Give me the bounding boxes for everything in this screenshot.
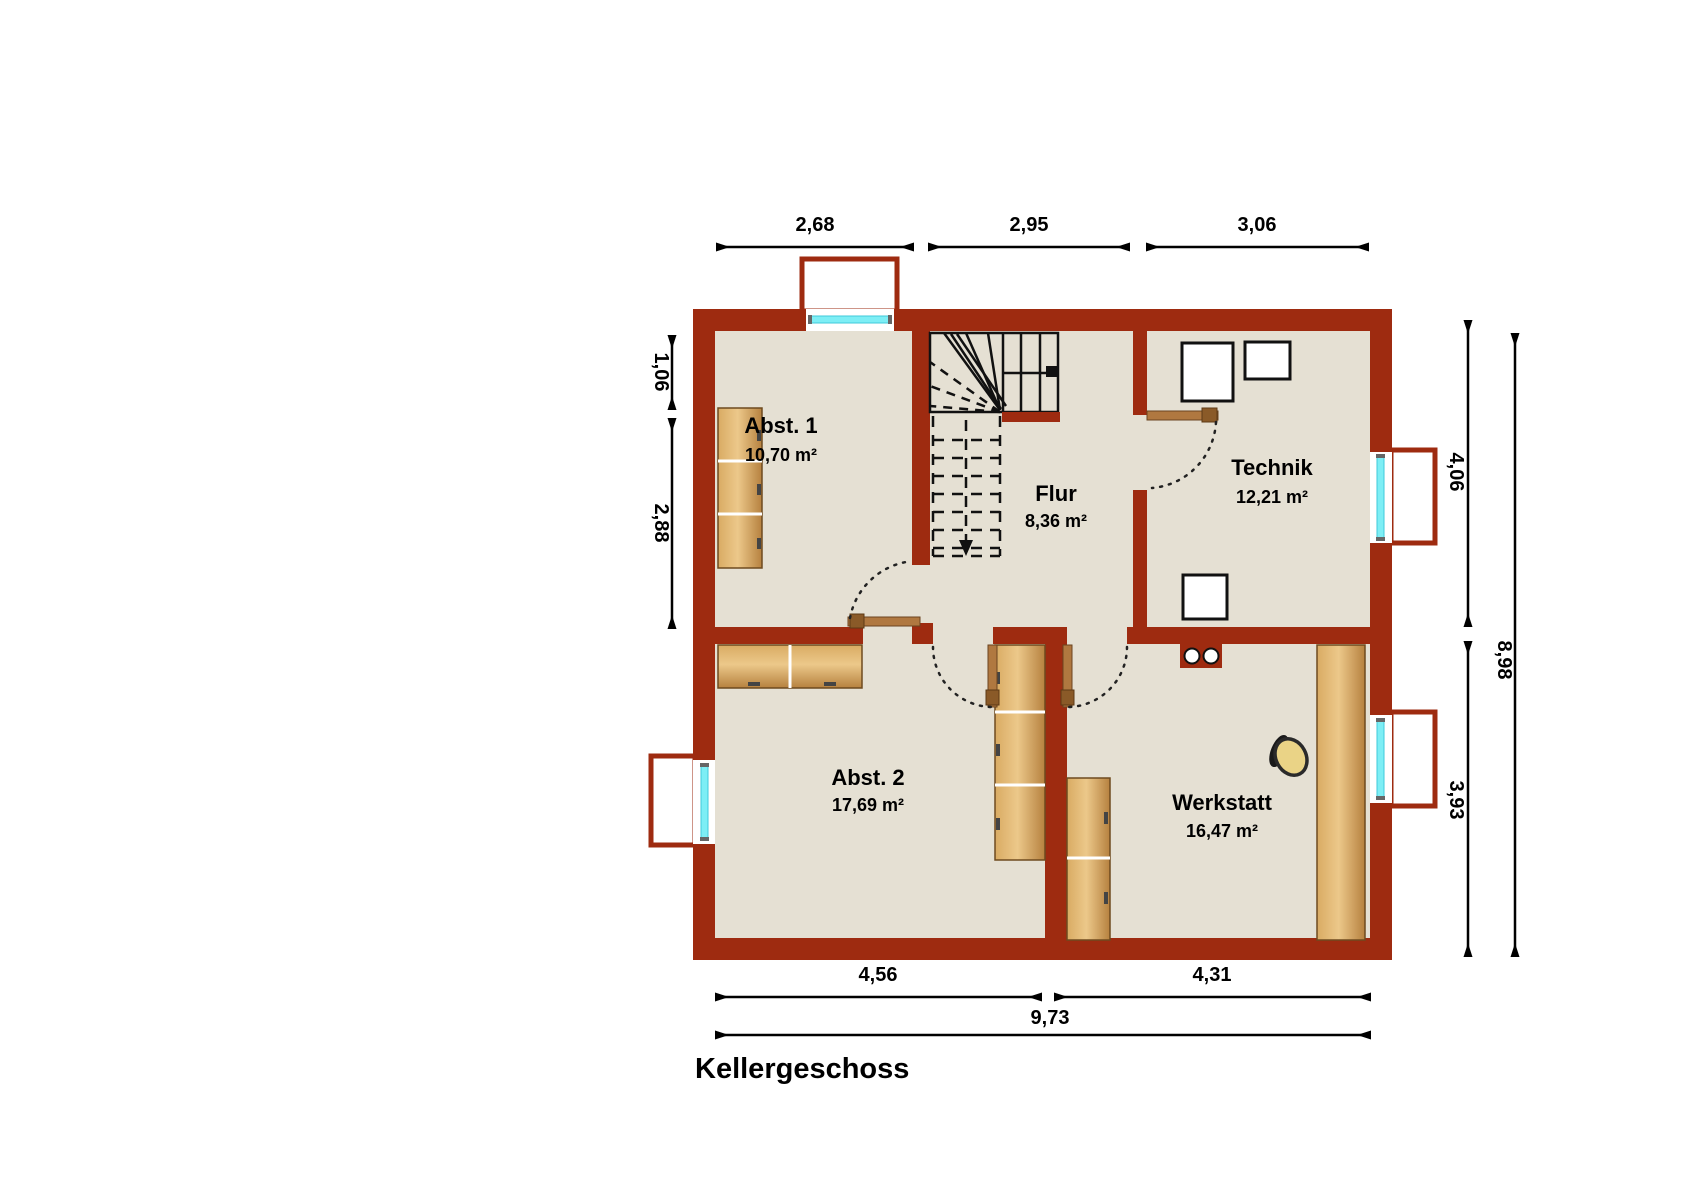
room-werkstatt-area: 16,47 m² xyxy=(1186,821,1258,841)
wall-west xyxy=(693,309,715,960)
dim-bottom-1: 4,56 xyxy=(859,964,898,986)
wall-technik-west-lower xyxy=(1133,490,1147,627)
wall-werkstatt-north xyxy=(1127,627,1370,644)
light-well-left-abst2 xyxy=(651,756,695,845)
cabinet-abst2-partition xyxy=(995,645,1045,860)
dim-left-1: 1,06 xyxy=(650,353,672,392)
room-abst1-name: Abst. 1 xyxy=(744,413,817,438)
dim-right-total: 8,98 xyxy=(1493,641,1515,680)
appliance-bottom xyxy=(1183,575,1227,619)
cabinet-abst2-north xyxy=(718,645,862,688)
dim-right-2: 3,93 xyxy=(1445,781,1467,820)
appliance-small xyxy=(1245,342,1290,379)
window-werkstatt xyxy=(1370,715,1392,803)
door-werkstatt-hinge xyxy=(1061,690,1074,705)
wall-east xyxy=(1370,309,1392,960)
dim-bottom-2: 4,31 xyxy=(1193,964,1232,986)
room-flur-area: 8,36 m² xyxy=(1025,511,1087,531)
dim-right-1: 4,06 xyxy=(1445,453,1467,492)
room-werkstatt-name: Werkstatt xyxy=(1172,790,1273,815)
light-well-top xyxy=(802,259,897,311)
door-abst1-hinge xyxy=(850,614,864,628)
dim-top-3: 3,06 xyxy=(1238,214,1277,236)
room-technik-name: Technik xyxy=(1231,455,1313,480)
dim-top-1: 2,68 xyxy=(796,214,835,236)
door-technik-hinge xyxy=(1202,408,1217,422)
wall-technik-west-upper xyxy=(1133,331,1147,415)
sink-unit xyxy=(1180,643,1222,668)
dim-top-2: 2,95 xyxy=(1010,214,1049,236)
floorplan-drawing: 2,68 2,95 3,06 1,06 2,88 4,06 3,93 8,98 … xyxy=(0,0,1700,1202)
plan-title: Kellergeschoss xyxy=(695,1053,909,1085)
room-abst2-area: 17,69 m² xyxy=(832,795,904,815)
wall-stair-stub xyxy=(1002,412,1060,422)
wall-abst1-south xyxy=(715,627,863,644)
dim-bottom-total: 9,73 xyxy=(1031,1007,1070,1029)
light-well-right-werkstatt xyxy=(1391,712,1435,806)
workbench xyxy=(1317,645,1365,940)
cabinet-werkstatt-partition xyxy=(1067,778,1110,940)
dim-left-2: 2,88 xyxy=(650,504,672,543)
door-abst2-hinge xyxy=(986,690,999,705)
floorplan-page: 2,68 2,95 3,06 1,06 2,88 4,06 3,93 8,98 … xyxy=(0,0,1700,1202)
wall-south xyxy=(693,938,1392,960)
light-well-right-technik xyxy=(1391,450,1435,543)
window-technik xyxy=(1370,452,1392,543)
appliance-large xyxy=(1182,343,1233,401)
wall-stair-west xyxy=(912,331,930,565)
room-flur-name: Flur xyxy=(1035,481,1077,506)
stair-newel-post xyxy=(1046,366,1058,377)
wall-flur-south xyxy=(993,627,1067,644)
window-abst2 xyxy=(693,760,715,844)
window-top xyxy=(806,309,894,331)
room-abst2-name: Abst. 2 xyxy=(831,765,904,790)
room-abst1-area: 10,70 m² xyxy=(745,445,817,465)
wall-north xyxy=(693,309,1392,331)
room-technik-area: 12,21 m² xyxy=(1236,487,1308,507)
